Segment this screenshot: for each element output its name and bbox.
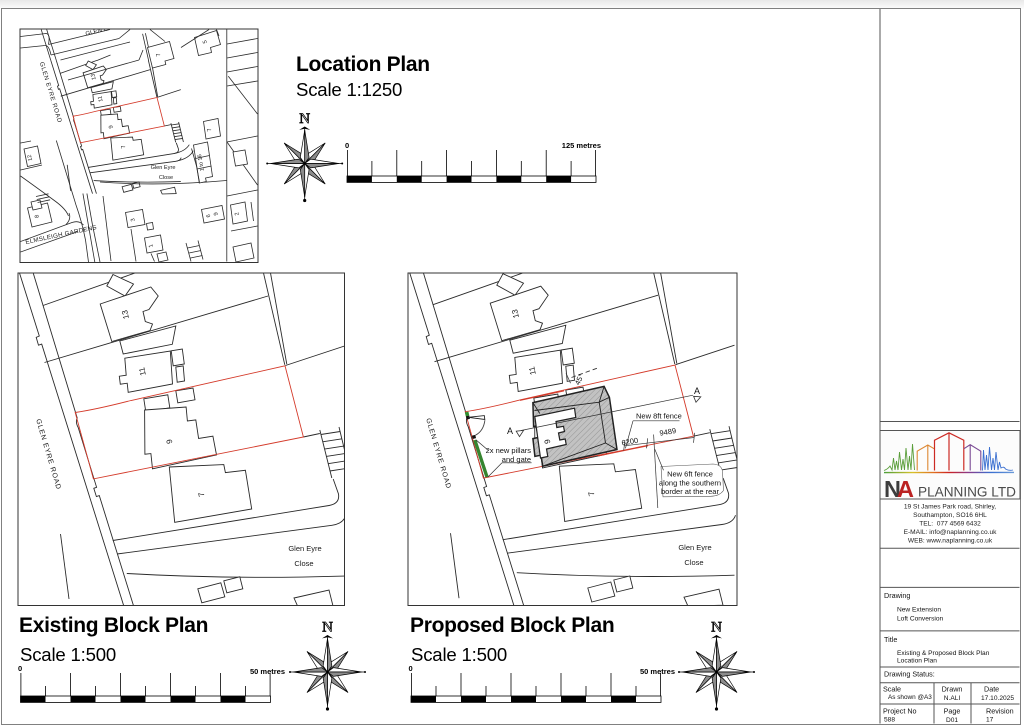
- svg-text:Existing & Proposed Block Plan: Existing & Proposed Block Plan: [897, 650, 990, 657]
- svg-text:Page: Page: [944, 707, 961, 716]
- svg-text:Southampton, SO16 6HL: Southampton, SO16 6HL: [913, 512, 987, 519]
- svg-text:2x new pillars: 2x new pillars: [486, 446, 532, 455]
- svg-text:Drawing Status:: Drawing Status:: [884, 670, 935, 679]
- svg-text:Glen Eyre: Glen Eyre: [288, 544, 321, 553]
- svg-text:TEL: 077 4569 6432: TEL: 077 4569 6432: [919, 521, 981, 528]
- svg-text:N.ALI: N.ALI: [944, 695, 961, 702]
- svg-text:Close: Close: [294, 559, 313, 568]
- svg-text:New 8ft fence: New 8ft fence: [636, 412, 682, 421]
- svg-text:0: 0: [409, 664, 413, 673]
- svg-text:0: 0: [345, 141, 349, 150]
- svg-text:588: 588: [884, 717, 895, 724]
- svg-text:D01: D01: [946, 717, 958, 724]
- svg-text:17: 17: [986, 717, 994, 724]
- svg-text:Location Plan: Location Plan: [897, 657, 937, 664]
- svg-text:Title: Title: [884, 635, 897, 644]
- svg-text:Drawn: Drawn: [942, 685, 963, 694]
- svg-text:Glen Eyre: Glen Eyre: [151, 165, 176, 171]
- svg-text:Revision: Revision: [986, 707, 1014, 716]
- svg-text:0: 0: [18, 664, 22, 673]
- svg-text:A: A: [694, 386, 700, 396]
- svg-text:As shown @A3: As shown @A3: [888, 694, 932, 701]
- svg-text:E-MAIL: info@naplanning.co.uk: E-MAIL: info@naplanning.co.uk: [904, 529, 998, 536]
- svg-text:50 metres: 50 metres: [250, 667, 285, 676]
- svg-text:Loft Conversion: Loft Conversion: [897, 616, 944, 623]
- svg-text:Glen Eyre: Glen Eyre: [678, 543, 711, 552]
- svg-text:Drawing: Drawing: [884, 591, 910, 600]
- svg-text:New 6ft fence: New 6ft fence: [667, 470, 713, 479]
- svg-text:Close: Close: [159, 175, 173, 181]
- svg-text:125 metres: 125 metres: [562, 141, 601, 150]
- svg-text:border at the rear: border at the rear: [661, 487, 719, 496]
- svg-text:New Extension: New Extension: [897, 607, 941, 614]
- svg-text:50 metres: 50 metres: [640, 667, 675, 676]
- svg-text:Date: Date: [984, 685, 999, 694]
- svg-text:PLANNING LTD: PLANNING LTD: [918, 485, 1016, 500]
- svg-text:Project No: Project No: [883, 707, 917, 716]
- svg-text:19 St James Park road, Shirley: 19 St James Park road, Shirley,: [904, 504, 996, 511]
- svg-text:Close: Close: [684, 558, 703, 567]
- svg-text:A: A: [897, 476, 914, 502]
- svg-text:A: A: [507, 426, 513, 436]
- svg-text:WEB: www.naplanning.co.uk: WEB: www.naplanning.co.uk: [908, 538, 993, 545]
- svg-text:Scale: Scale: [883, 685, 901, 694]
- svg-text:along the southern: along the southern: [659, 478, 721, 487]
- svg-text:17.10.2025: 17.10.2025: [981, 695, 1014, 702]
